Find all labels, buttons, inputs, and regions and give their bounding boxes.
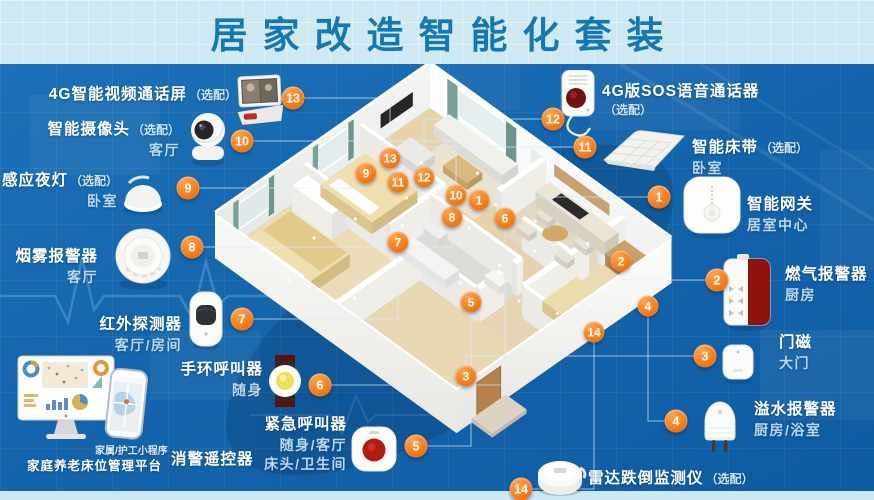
- device-name: 雷达跌倒监测仪: [588, 470, 704, 487]
- device-location: 客厅: [15, 269, 98, 285]
- label-bed-belt: 智能床带（选配） 卧室: [692, 139, 808, 176]
- marker-badge-9-house: 9: [356, 163, 377, 184]
- device-name: 紧急呼叫器: [264, 416, 347, 433]
- marker-badge-11-label: 11: [574, 136, 597, 159]
- optional-tag: （选配）: [604, 103, 652, 117]
- device-location: 卧室: [692, 160, 808, 176]
- label-radar-fall-monitor: 雷达跌倒监测仪（选配）: [588, 470, 754, 488]
- device-name: 智能网关: [747, 196, 813, 213]
- label-smart-camera: 智能摄像头（选配） 客厅: [47, 121, 180, 158]
- platform-caption: 家庭养老床位管理平台: [27, 455, 162, 474]
- optional-tag: （选配）: [706, 472, 754, 486]
- marker-badge-14-house: 14: [584, 322, 605, 343]
- optional-tag: （选配）: [132, 123, 180, 137]
- camera-icon: [184, 110, 232, 167]
- door-magnet-icon: [719, 343, 757, 385]
- device-name: 手环呼叫器: [180, 361, 263, 378]
- marker-badge-10-label: 10: [231, 130, 254, 153]
- label-pir-detector: 红外探测器 客厅/房间: [99, 316, 182, 353]
- marker-badge-4-house: 4: [638, 296, 659, 317]
- device-name: 门磁: [779, 334, 812, 351]
- device-location: 厨房: [785, 287, 868, 303]
- bottom-band: [0, 491, 874, 500]
- label-wristband-caller: 手环呼叫器 随身: [180, 361, 263, 398]
- device-name: 烟雾报警器: [15, 248, 98, 265]
- device-name: 智能床带: [692, 139, 758, 156]
- device-location: 客厅: [47, 142, 180, 158]
- marker-badge-7-house: 7: [388, 232, 409, 253]
- marker-badge-6-label: 6: [309, 374, 332, 397]
- sos-talker-icon: [558, 70, 598, 138]
- device-name: 4G智能视频通话屏: [49, 86, 187, 103]
- device-name: 消警遥控器: [171, 451, 254, 468]
- device-location: 卧室: [2, 193, 118, 209]
- device-location: 厨房/浴室: [754, 422, 837, 438]
- device-location: 居室中心: [747, 217, 813, 233]
- marker-badge-12-label: 12: [542, 108, 565, 131]
- label-smoke-alarm: 烟雾报警器 客厅: [15, 248, 98, 285]
- marker-badge-11-house: 11: [388, 172, 409, 193]
- water-alarm-icon: [697, 392, 743, 456]
- smart-home-poster: 居家改造智能化套装 4G智能视频通话屏（选配） 智能摄像头（选配） 客厅 感应夜…: [0, 0, 874, 500]
- pir-detector-icon: [186, 290, 226, 350]
- marker-badge-13-label: 13: [282, 87, 305, 110]
- device-name: 感应夜灯: [2, 172, 68, 189]
- label-sos-talker: 4G版SOS语音通话器 （选配）: [602, 83, 759, 120]
- emergency-button-icon: [350, 425, 398, 473]
- label-emergency-caller: 紧急呼叫器 随身/客厅 床头/卫生间: [264, 416, 347, 473]
- poster-title: 居家改造智能化套装: [196, 5, 679, 59]
- night-light-icon: [120, 166, 166, 216]
- marker-badge-5-house: 5: [461, 292, 482, 313]
- marker-badge-13-house: 13: [380, 148, 401, 169]
- device-location: 随身/客厅: [264, 437, 347, 453]
- radar-monitor-icon: [532, 450, 588, 498]
- optional-tag: （选配）: [760, 141, 808, 155]
- device-location: 大门: [779, 355, 812, 371]
- smoke-alarm-icon: [108, 226, 178, 292]
- label-alarm-remote: 消警遥控器: [171, 451, 254, 469]
- label-night-light: 感应夜灯（选配） 卧室: [2, 172, 118, 209]
- marker-badge-7-label: 7: [231, 308, 254, 331]
- marker-badge-8-label: 8: [181, 236, 204, 259]
- device-location: 床头/卫生间: [264, 456, 347, 472]
- optional-tag: （选配）: [189, 88, 237, 102]
- label-water-alarm: 溢水报警器 厨房/浴室: [754, 401, 837, 438]
- gateway-icon: [680, 175, 744, 239]
- label-gas-alarm: 燃气报警器 厨房: [785, 266, 868, 303]
- marker-badge-14-label: 14: [510, 478, 533, 500]
- marker-badge-3-label: 3: [694, 345, 717, 368]
- optional-tag: （选配）: [70, 174, 118, 188]
- marker-badge-2-house: 2: [611, 251, 632, 272]
- device-name: 智能摄像头: [47, 121, 130, 138]
- device-name: 4G版SOS语音通话器: [602, 83, 759, 100]
- marker-badge-6-house: 6: [495, 208, 516, 229]
- marker-badge-2-label: 2: [706, 269, 729, 292]
- marker-badge-8-house: 8: [442, 207, 463, 228]
- bed-belt-icon: [598, 128, 690, 174]
- marker-badge-12-house: 12: [414, 167, 435, 188]
- marker-badge-1-label: 1: [648, 186, 671, 209]
- device-location: 客厅/房间: [99, 337, 182, 353]
- device-name: 溢水报警器: [754, 401, 837, 418]
- label-gateway: 智能网关 居室中心: [747, 196, 813, 233]
- label-door-magnet: 门磁 大门: [779, 334, 812, 371]
- marker-badge-5-label: 5: [405, 435, 428, 458]
- marker-badge-10-house: 10: [446, 185, 467, 206]
- marker-badge-4-label: 4: [665, 410, 688, 433]
- marker-badge-9-label: 9: [177, 177, 200, 200]
- device-name: 燃气报警器: [785, 266, 868, 283]
- label-video-call-screen: 4G智能视频通话屏（选配）: [49, 86, 237, 104]
- wristband-caller-icon: [264, 355, 306, 407]
- device-name: 红外探测器: [99, 316, 182, 333]
- device-location: 随身: [180, 382, 263, 398]
- gas-alarm-icon: [721, 254, 773, 332]
- marker-badge-3-house: 3: [456, 366, 477, 387]
- title-band: 居家改造智能化套装: [0, 0, 874, 64]
- marker-badge-1-house: 1: [469, 190, 490, 211]
